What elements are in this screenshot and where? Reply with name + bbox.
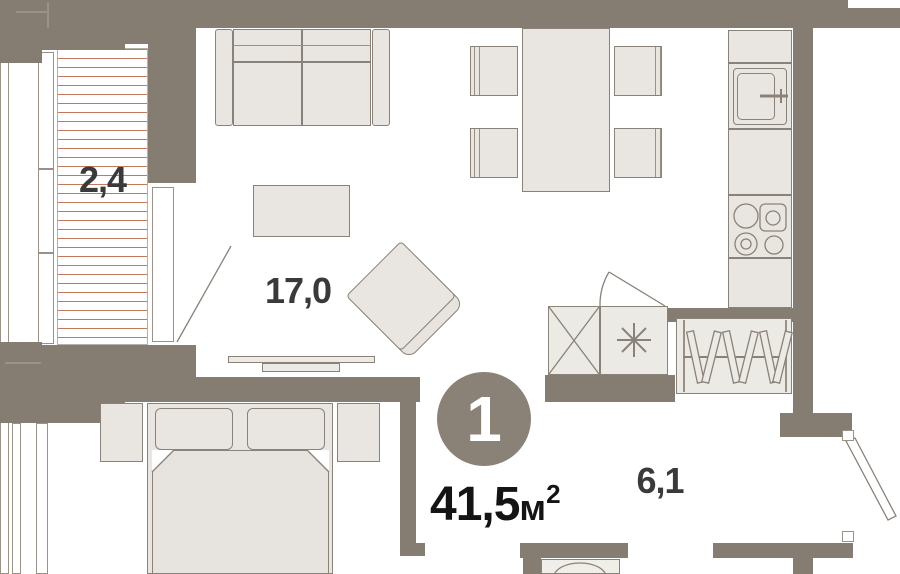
dining-chair <box>470 128 518 178</box>
wall-seam <box>5 362 41 364</box>
chair-backrest-line <box>479 129 480 177</box>
entrance-door-leaf <box>846 438 896 520</box>
chair-backrest-line <box>479 47 480 95</box>
wall-right <box>793 0 813 418</box>
wall-bathroom-stub <box>523 558 541 574</box>
closet-door-leaf <box>609 272 665 306</box>
door-hinge-cap <box>842 430 854 441</box>
sofa-armrest <box>372 29 390 126</box>
chair-backrest-line <box>474 47 475 95</box>
door-hinge-cap <box>842 531 854 542</box>
bedroom-window <box>12 423 21 574</box>
kitchen-counter <box>728 30 792 63</box>
ventilation-shaft <box>548 306 600 375</box>
kitchen-counter <box>728 258 792 308</box>
armchair-seat <box>346 241 456 351</box>
total-area-value: 41,5 <box>430 478 519 531</box>
wall-bathroom <box>520 543 628 558</box>
chair-backrest-line <box>655 129 656 177</box>
wall-entry-bottom <box>713 543 853 558</box>
dining-chair <box>470 46 518 96</box>
sofa-seam <box>233 45 371 46</box>
coffee-table <box>253 185 350 237</box>
nightstand <box>337 403 380 462</box>
pillow <box>247 408 325 450</box>
dining-table <box>522 28 610 192</box>
window-outer-frame <box>0 48 9 574</box>
floor-plan: 2,4 17,0 6,1 1 41,5м2 <box>0 0 900 574</box>
sofa-seat-cushion <box>302 62 371 126</box>
balcony-window <box>38 52 54 344</box>
pillow <box>155 408 233 450</box>
tv-stand <box>262 363 340 372</box>
total-area-superscript: 2 <box>546 479 559 509</box>
wall-closet-bottom <box>545 375 675 402</box>
wardrobe-side-panel <box>785 320 787 392</box>
wall-seam <box>47 2 49 28</box>
total-area-unit: м <box>519 487 545 528</box>
living-area-label: 17,0 <box>258 273 338 309</box>
closet-door-arc <box>600 272 609 306</box>
wall-bedroom-hall <box>400 402 416 543</box>
bedroom-window <box>36 423 48 574</box>
balcony-area-label: 2,4 <box>57 162 148 198</box>
balcony-door-swing <box>177 246 231 342</box>
chair-backrest-line <box>474 129 475 177</box>
chair-backrest-line <box>655 47 656 95</box>
wall-top-left-ext <box>125 0 148 44</box>
kitchen-counter <box>728 129 792 195</box>
kitchen-sink <box>737 73 775 120</box>
wall-entry-bottom-stub <box>793 558 813 574</box>
sofa-armrest <box>215 29 233 126</box>
wall-top-left-step <box>0 0 42 63</box>
sofa-seat-cushion <box>233 62 302 126</box>
tv <box>228 356 375 363</box>
blanket <box>152 450 329 574</box>
rooms-count-badge: 1 <box>437 372 531 466</box>
total-area-label: 41,5м2 <box>430 477 559 532</box>
stove <box>728 195 792 258</box>
wardrobe-side-panel <box>683 320 685 392</box>
wall-bedroom-hall-stub <box>400 543 425 556</box>
rooms-count-value: 1 <box>466 383 502 455</box>
washing-machine-spot <box>600 306 668 375</box>
nightstand <box>100 403 143 462</box>
balcony-door <box>152 187 174 342</box>
chair-backrest-line <box>660 129 661 177</box>
chair-backrest-line <box>660 47 661 95</box>
window-mullion <box>39 168 53 170</box>
hallway-area-label: 6,1 <box>620 463 700 499</box>
wall-balcony-divider <box>148 0 196 183</box>
window-mullion <box>39 252 53 254</box>
wall-notch <box>848 0 900 8</box>
wardrobe <box>676 318 792 394</box>
wall-seam <box>16 11 49 13</box>
bathroom-sink-cabinet <box>541 559 620 574</box>
